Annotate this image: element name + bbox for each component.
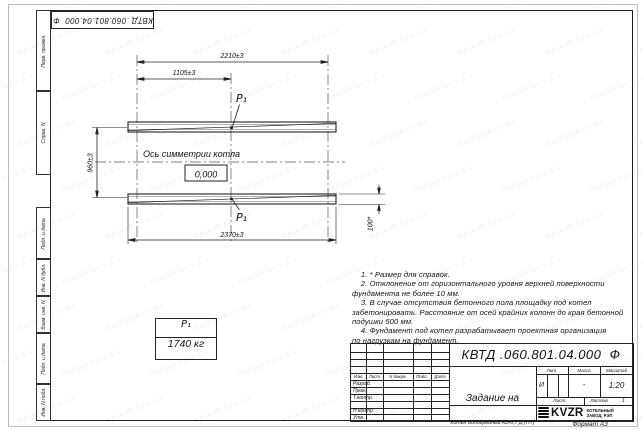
tb-mass-value: - [568,374,600,397]
tb-header-doc: N докум. [383,373,413,380]
tb-sheets-value: 1 [614,398,633,405]
dim-right-label: 100* [368,217,375,232]
tb-header-data: Дата [431,373,449,380]
mass-table-load: P₁ [156,319,216,338]
drawing-sheet: ·basnab-bv·v.b·s·basnab-bv·v.b·s·basnab-… [0,0,644,430]
note-line: забетонировать. Расстояние от осей крайн… [352,308,634,317]
tb-scale-value: 1:20 [600,374,633,397]
dim-left-label: 960±3 [88,153,95,173]
note-line: подушки 500 мм. [352,317,634,326]
dim-bottom-label: 2370±3 [219,232,243,239]
dim-top-label: 2210±3 [219,53,243,60]
note-line: 1. * Размер для справок. [352,270,634,279]
logo-text: KVZR [551,407,584,419]
tb-row-razrab: Разраб. [353,381,382,388]
note-line: 4. Фундамент под котел разрабатывает про… [352,326,634,335]
tb-doc-number: КВТД .060.801.04.000 Ф [449,344,633,366]
tb-header-mass: Масса [568,367,600,374]
logo-tagline-2: ЗАВОД, РЭП [587,413,614,418]
tb-subtitle: Котел Водогрейный КВ-0,7 Д (ПТ) по техни… [449,407,536,430]
symmetry-axis-label: Ось симметрии котла [143,149,240,159]
load-point-label-bottom: P₁ [236,211,247,224]
tb-header-izm: Изм. [351,373,366,380]
tb-header-lit: Лит. [536,367,568,374]
note-line: фундамента не более 10 мм. [352,289,634,298]
dim-top-half-label: 1105±3 [173,70,196,77]
notes-block: 1. * Размер для справок. 2. Отклонение о… [352,270,634,345]
company-logo: KVZR КОТЕЛЬНЫЙ ЗАВОД, РЭП [538,405,632,420]
level-mark-value: 0,000 [195,170,218,180]
tb-lit-value: И [536,374,547,397]
load-point-label-top: P₁ [236,92,247,105]
title-block: Изм. Лист N докум. Подп. Дата Разраб. Пр… [350,343,634,422]
format-label: Формат А3 [545,421,635,428]
tb-header-list: Лист [366,373,383,380]
tb-sheet-label: Лист. [536,398,584,405]
tb-row-prov: Пров. [353,388,382,395]
tb-row-tkontr: Т.контр. [353,395,382,402]
boiler-coil-icon [538,407,549,418]
note-line: 3. В случае отсутствия бетонного пола пл… [352,298,634,307]
mass-table: P₁ 1740 кг [155,318,217,360]
tb-subtitle-line1: Котел Водогрейный КВ-0,7 Д (ПТ) [449,420,536,427]
tb-title-line1: Задание на [449,393,536,406]
logo-tagline-1: КОТЕЛЬНЫЙ [587,408,614,413]
logo-tagline: КОТЕЛЬНЫЙ ЗАВОД, РЭП [587,408,614,418]
note-line: 2. Отклонение от горизонтального уровня … [352,279,634,288]
tb-row-utv: Утв. [353,415,382,422]
tb-header-scale: Масштаб [600,367,633,374]
tb-header-podp: Подп. [413,373,431,380]
mass-table-value: 1740 кг [156,338,216,359]
tb-sheets-label: Листов [584,398,614,405]
